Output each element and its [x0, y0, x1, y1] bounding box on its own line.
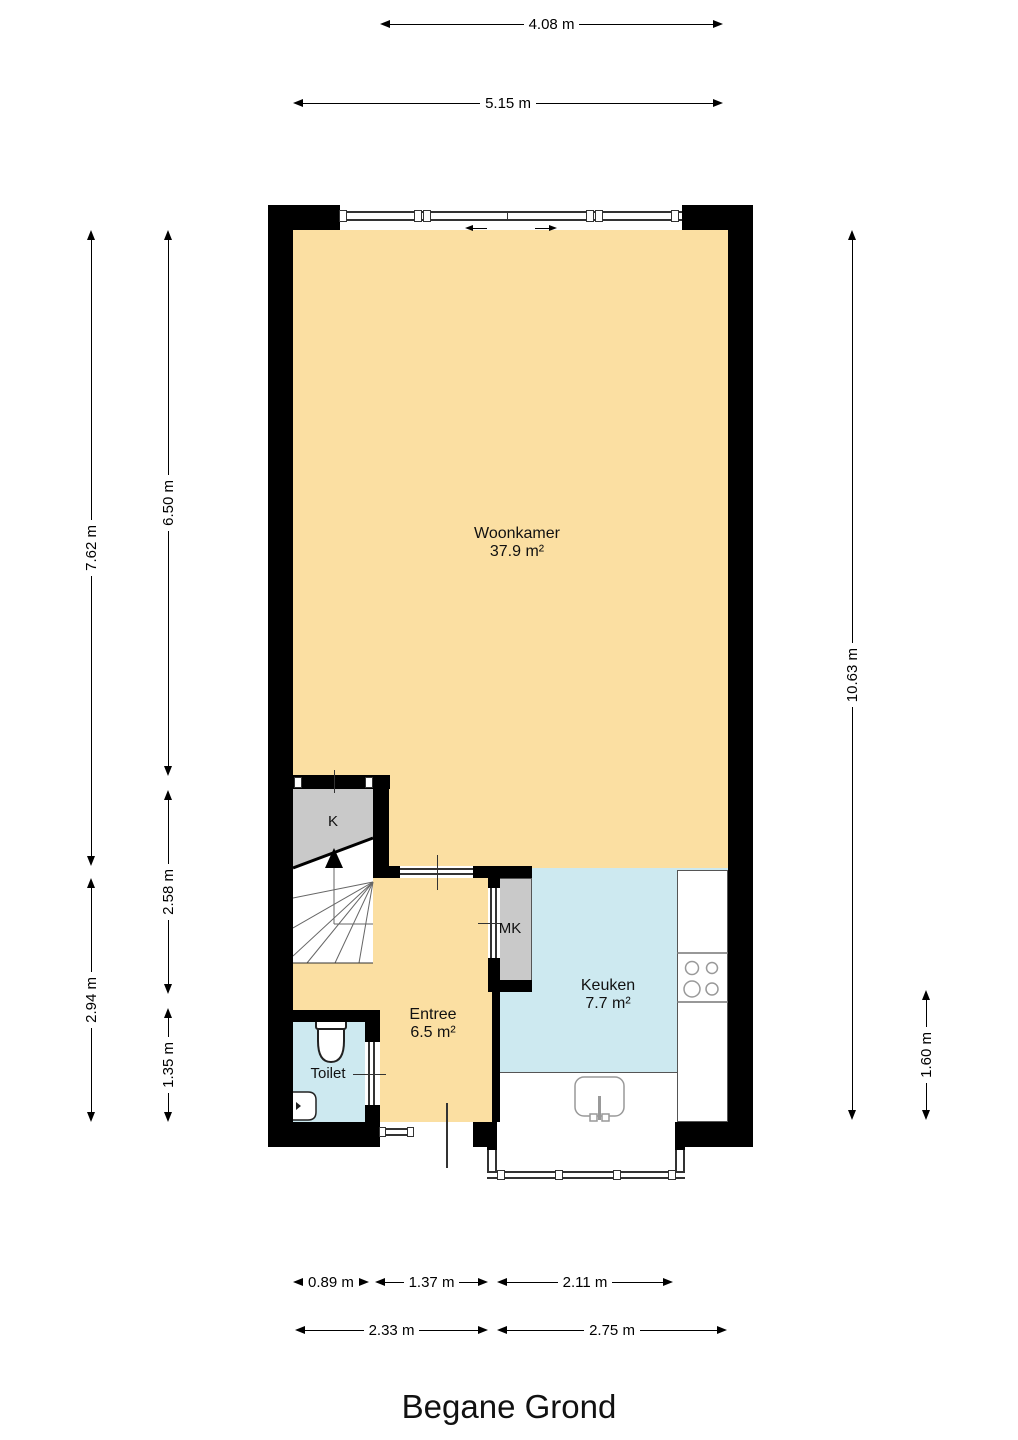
closet-k-label: K	[328, 813, 338, 831]
stairs-door-post	[294, 777, 302, 788]
dimension-right-kitchen: 1.60 m	[918, 990, 934, 1120]
wall-toilet-right-top	[365, 1010, 380, 1042]
sink-icon	[570, 1072, 630, 1124]
toilet-label: Toilet	[310, 1065, 345, 1083]
stove-icon	[677, 945, 728, 1007]
bay-window-mullion	[497, 1170, 505, 1180]
entree-name: Entree	[409, 1006, 456, 1024]
dimension-bottom-kitchen: 2.11 m	[497, 1274, 673, 1290]
dimension-right-total-height: 10.63 m	[844, 230, 860, 1120]
wall-stairs-right	[373, 775, 389, 878]
wall-toilet-right-bottom	[365, 1105, 380, 1122]
wall-bay-left	[487, 1122, 497, 1150]
woonkamer-name: Woonkamer	[474, 525, 560, 543]
hall-opening-tick	[437, 855, 438, 890]
keuken-name: Keuken	[581, 977, 635, 995]
hand-basin-icon	[291, 1092, 316, 1120]
wall-bay-right	[675, 1122, 685, 1150]
top-window-mullion	[586, 210, 594, 222]
wall-hall-kitchen	[492, 990, 500, 1122]
dimension-left-lower: 2.94 m	[83, 878, 99, 1122]
dimension-left-inner-stairs: 2.58 m	[160, 790, 176, 994]
front-door-leaf	[446, 1103, 448, 1168]
keuken-label: Keuken 7.7 m²	[581, 977, 635, 1013]
toilet-bowl-icon	[316, 1020, 346, 1062]
bay-window-left	[487, 1150, 497, 1171]
sliding-door-arrow-right	[535, 224, 557, 232]
sliding-door-arrow-left	[465, 224, 487, 232]
wall-livingroom-hall-1	[373, 866, 400, 878]
dimension-left-upper: 7.62 m	[83, 230, 99, 866]
wall-mk-left-bottom	[488, 958, 500, 982]
entree-area: 6.5 m²	[409, 1024, 456, 1042]
dimension-bottom-entree: 1.37 m	[375, 1274, 488, 1290]
top-window-mullion	[339, 210, 347, 222]
front-sidelight-mullion	[407, 1127, 414, 1137]
dimension-top-total-width: 5.15 m	[293, 95, 723, 111]
bay-window-mullion	[555, 1170, 563, 1180]
top-window-mullion	[595, 210, 603, 222]
bay-window-front	[487, 1171, 685, 1179]
wall-left	[268, 205, 293, 1147]
top-window-mullion	[414, 210, 422, 222]
dimension-bottom-right-total: 2.75 m	[497, 1322, 727, 1338]
meterkast-label: MK	[499, 920, 522, 938]
front-door-gap	[414, 1122, 473, 1147]
top-window-mullion	[423, 210, 431, 222]
keuken-area: 7.7 m²	[581, 995, 635, 1013]
bay-window-right	[675, 1150, 685, 1171]
wall-bottom-right	[677, 1122, 753, 1147]
toilet-door-tick	[353, 1074, 386, 1075]
dimension-bottom-left-total: 2.33 m	[295, 1322, 488, 1338]
woonkamer-area: 37.9 m²	[474, 543, 560, 561]
top-window	[340, 211, 682, 221]
top-window-tick	[507, 212, 508, 220]
wall-livingroom-hall-2	[473, 866, 532, 878]
front-sidelight-mullion	[379, 1127, 386, 1137]
wall-mk-left-top	[488, 878, 500, 888]
entree-label: Entree 6.5 m²	[409, 1006, 456, 1042]
dimension-left-inner-toilet: 1.35 m	[160, 1008, 176, 1122]
stairs-opening-tick	[334, 770, 335, 793]
floorplan-page: Woonkamer 37.9 m² Keuken 7.7 m² Entree 6…	[0, 0, 1018, 1440]
dimension-bottom-toilet: 0.89 m	[293, 1274, 368, 1290]
bay-window-mullion	[613, 1170, 621, 1180]
stairs-door-post	[365, 777, 373, 788]
page-title: Begane Grond	[402, 1388, 617, 1426]
top-window-mullion	[671, 210, 679, 222]
dimension-top-window-width: 4.08 m	[380, 16, 723, 32]
wall-right	[728, 205, 753, 1147]
dimension-left-inner-livingroom: 6.50 m	[160, 230, 176, 776]
woonkamer-label: Woonkamer 37.9 m²	[474, 525, 560, 561]
bay-window-mullion	[668, 1170, 676, 1180]
wall-bottom-left	[268, 1122, 380, 1147]
